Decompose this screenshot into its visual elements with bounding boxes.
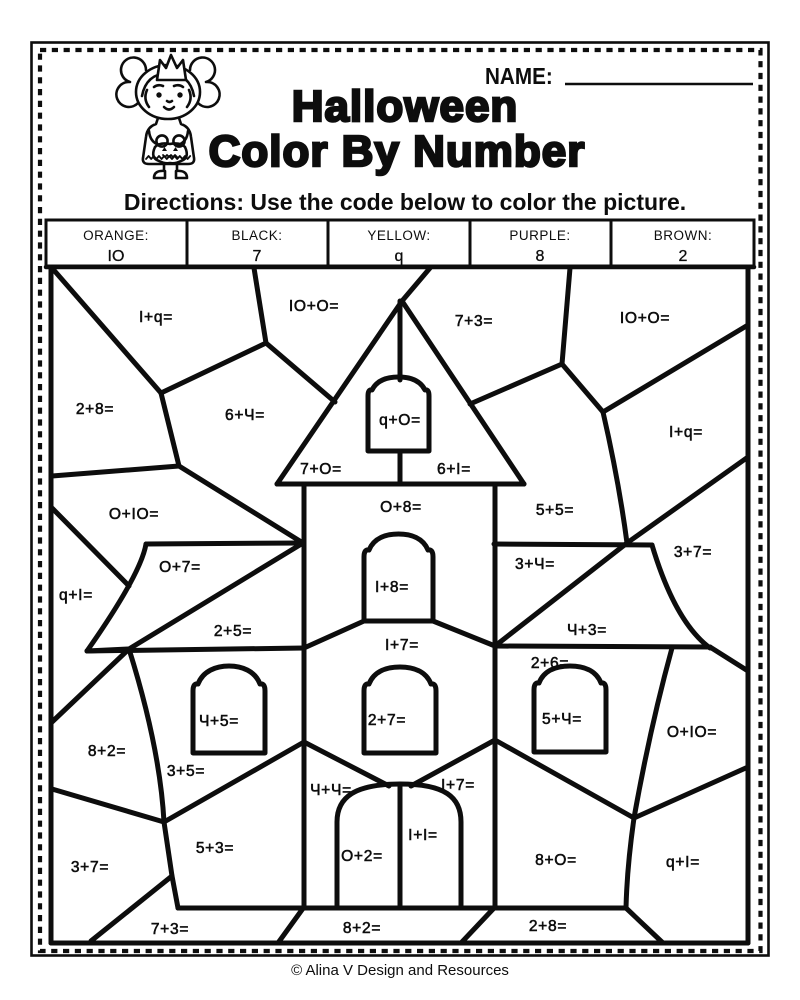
svg-text:BLACK:: BLACK: [231,228,282,243]
svg-text:8+2=: 8+2= [88,743,126,760]
svg-text:3+5=: 3+5= [167,763,205,780]
svg-text:5+Ч=: 5+Ч= [542,711,582,728]
svg-text:Ч+Ч=: Ч+Ч= [310,782,352,799]
svg-text:Color By Number: Color By Number [209,127,586,176]
svg-text:2+8=: 2+8= [529,918,567,935]
svg-text:ORANGE:: ORANGE: [83,228,149,243]
svg-text:I+8=: I+8= [375,579,409,596]
svg-text:8: 8 [536,248,545,265]
svg-text:6+Ч=: 6+Ч= [225,407,265,424]
svg-text:6+I=: 6+I= [437,461,471,478]
svg-text:Directions: Use the code below: Directions: Use the code below to color … [124,189,686,215]
svg-text:PURPLE:: PURPLE: [509,228,570,243]
svg-text:Halloween: Halloween [292,82,519,131]
svg-text:I+7=: I+7= [441,777,475,794]
svg-text:5+5=: 5+5= [536,502,574,519]
svg-text:O+8=: O+8= [380,499,422,516]
svg-text:O+2=: O+2= [341,848,383,865]
svg-text:I+q=: I+q= [139,309,173,326]
svg-text:q+I=: q+I= [59,587,93,604]
svg-text:3+Ч=: 3+Ч= [515,556,555,573]
svg-text:7+3=: 7+3= [151,921,189,938]
svg-text:2+8=: 2+8= [76,401,114,418]
svg-text:2+7=: 2+7= [368,712,406,729]
svg-text:3+7=: 3+7= [674,544,712,561]
svg-text:8+2=: 8+2= [343,920,381,937]
svg-text:YELLOW:: YELLOW: [367,228,430,243]
svg-text:Ч+3=: Ч+3= [567,622,607,639]
svg-text:Ч+5=: Ч+5= [199,713,239,730]
svg-text:q+O=: q+O= [379,412,421,429]
svg-text:7: 7 [253,248,262,265]
svg-text:2: 2 [679,248,688,265]
svg-text:2+6=: 2+6= [531,655,569,672]
svg-text:2+5=: 2+5= [214,623,252,640]
svg-text:5+3=: 5+3= [196,840,234,857]
svg-text:7+3=: 7+3= [455,313,493,330]
svg-text:BROWN:: BROWN: [654,228,713,243]
svg-text:7+O=: 7+O= [300,461,342,478]
svg-text:IO+O=: IO+O= [289,298,339,315]
svg-text:3+7=: 3+7= [71,859,109,876]
svg-text:8+O=: 8+O= [535,852,577,869]
svg-text:O+7=: O+7= [159,559,201,576]
svg-text:q: q [395,248,404,265]
svg-text:I+7=: I+7= [385,637,419,654]
svg-text:I+I=: I+I= [408,827,438,844]
svg-text:O+IO=: O+IO= [667,724,717,741]
svg-text:IO+O=: IO+O= [620,310,670,327]
svg-text:I+q=: I+q= [669,424,703,441]
svg-text:q+I=: q+I= [666,854,700,871]
svg-text:© Alina V Design and Resources: © Alina V Design and Resources [291,962,509,979]
svg-text:IO: IO [108,248,125,265]
svg-text:O+IO=: O+IO= [109,506,159,523]
